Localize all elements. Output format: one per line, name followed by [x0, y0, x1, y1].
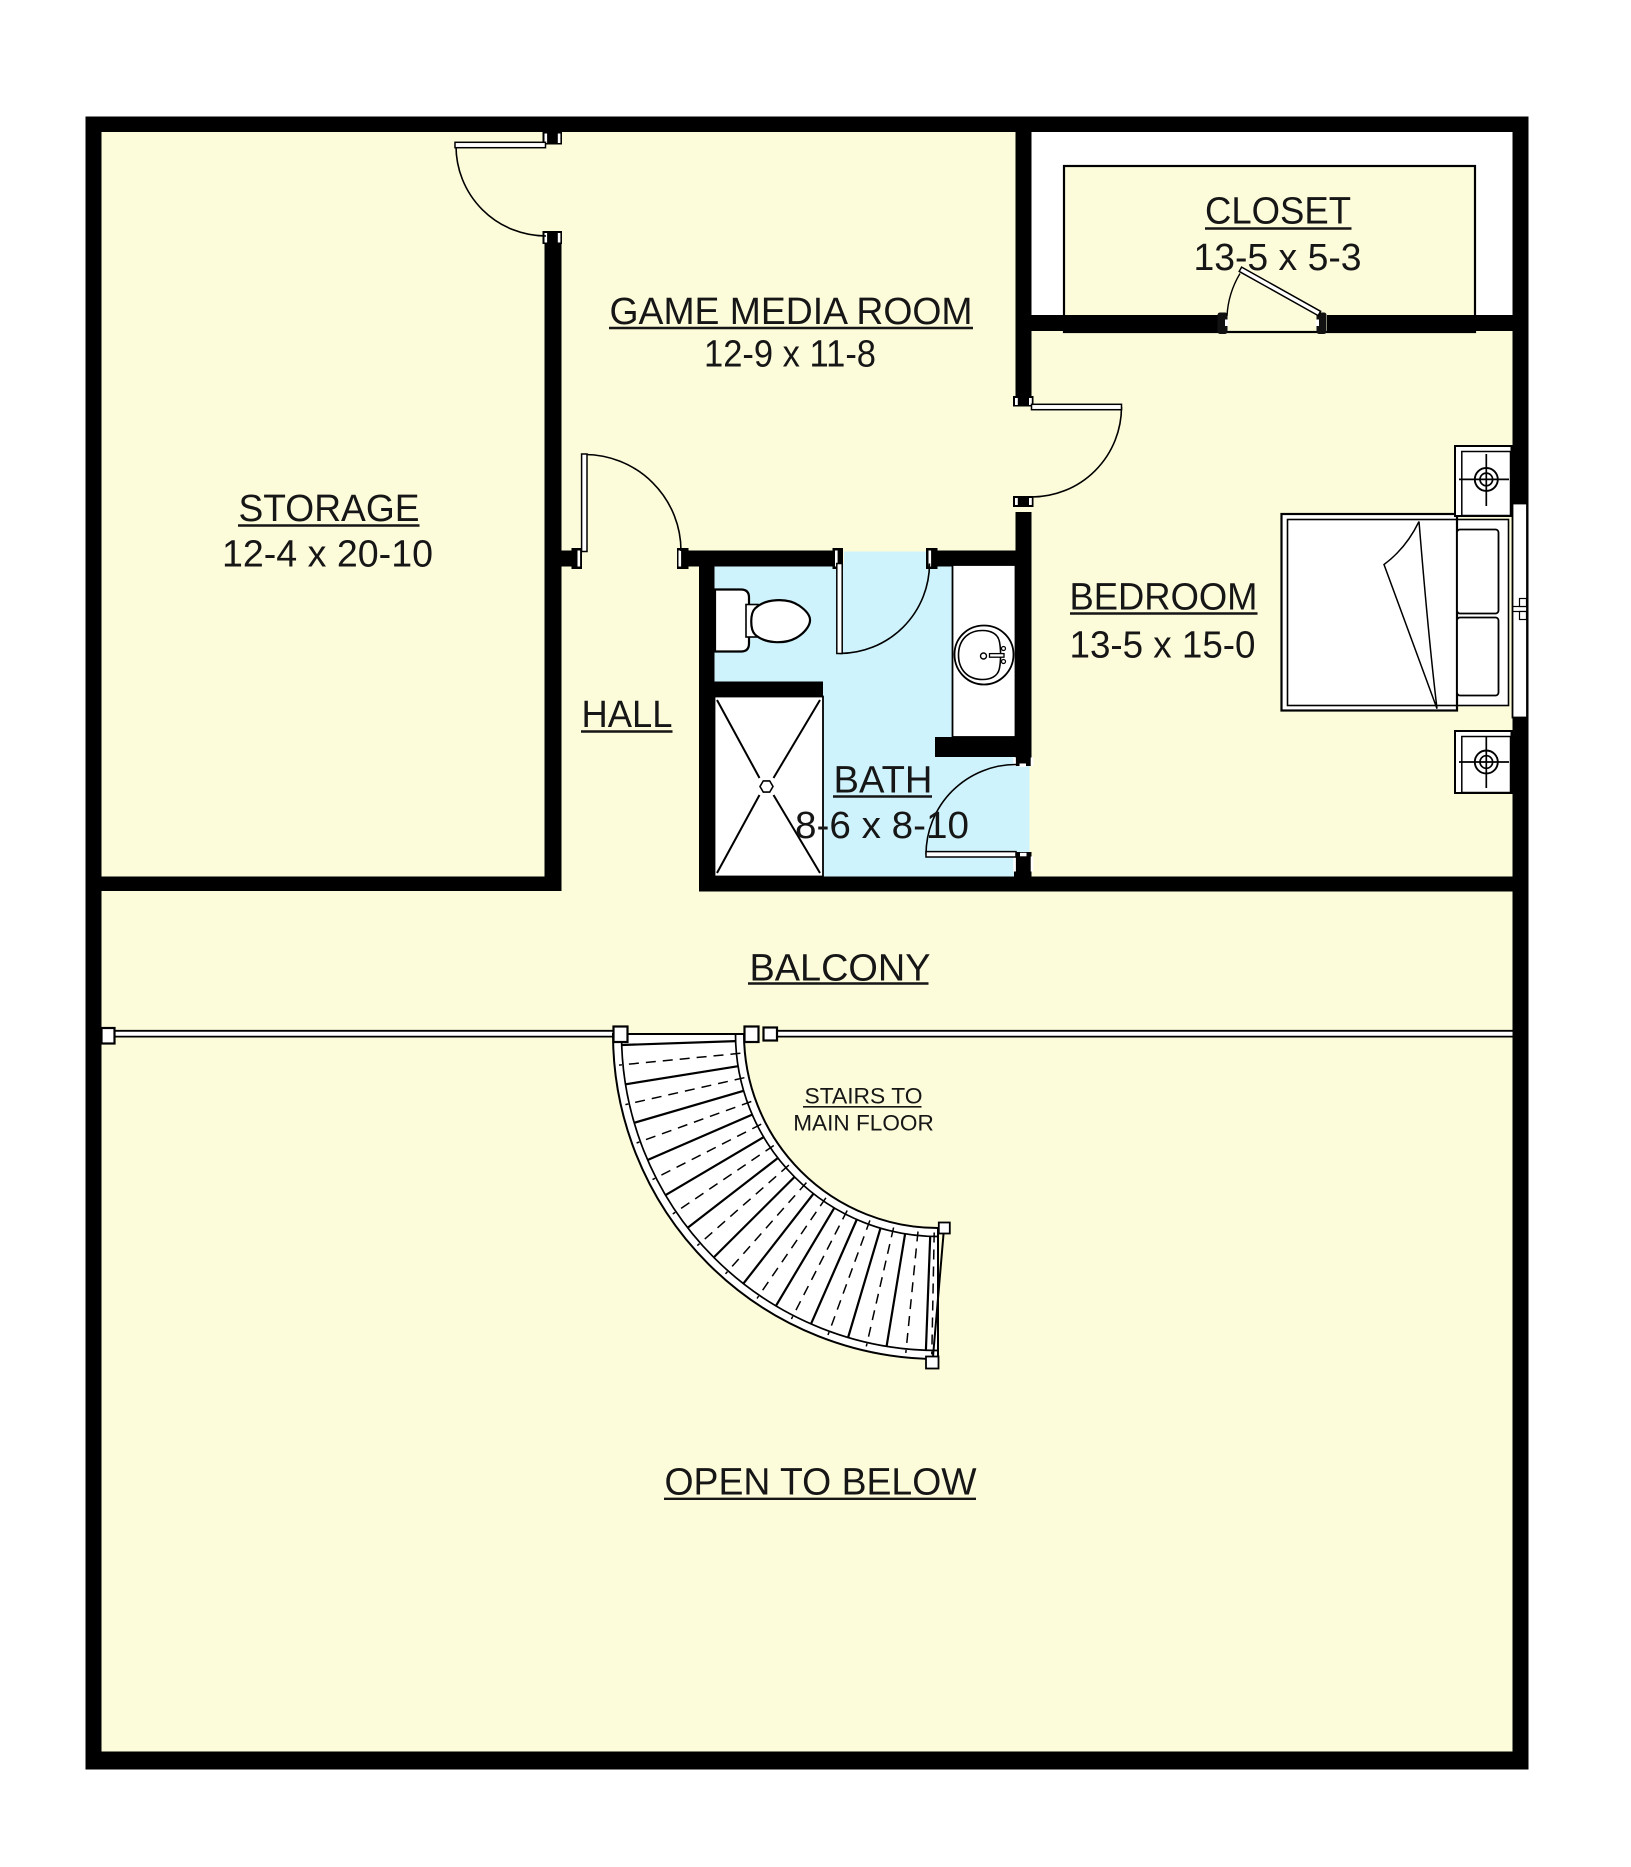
svg-text:OPEN TO BELOW: OPEN TO BELOW	[665, 1462, 977, 1504]
svg-text:GAME MEDIA ROOM: GAME MEDIA ROOM	[610, 291, 973, 333]
svg-text:BEDROOM: BEDROOM	[1070, 577, 1258, 619]
svg-text:BATH: BATH	[834, 760, 933, 802]
svg-text:STAIRS TO: STAIRS TO	[805, 1084, 923, 1109]
svg-text:13-5 x 15-0: 13-5 x 15-0	[1070, 625, 1256, 667]
svg-text:8-6 x 8-10: 8-6 x 8-10	[795, 805, 969, 847]
svg-text:HALL: HALL	[582, 694, 673, 736]
svg-text:STORAGE: STORAGE	[239, 488, 420, 530]
svg-text:13-5 x 5-3: 13-5 x 5-3	[1194, 237, 1362, 279]
svg-text:12-4 x 20-10: 12-4 x 20-10	[222, 534, 433, 576]
svg-text:CLOSET: CLOSET	[1205, 191, 1351, 233]
svg-text:12-9 x 11-8: 12-9 x 11-8	[704, 334, 876, 376]
svg-text:MAIN FLOOR: MAIN FLOOR	[793, 1111, 934, 1136]
